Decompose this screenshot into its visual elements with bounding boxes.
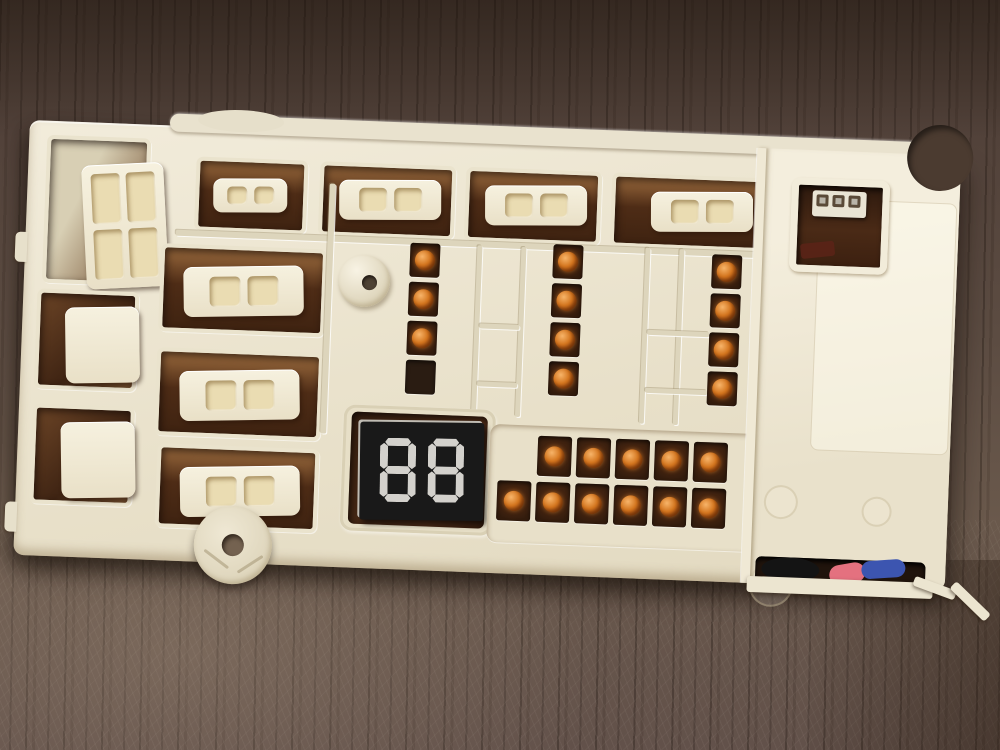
display-seg-a — [385, 438, 411, 446]
connector-four-pin-cube — [65, 306, 140, 383]
led-cell — [537, 436, 573, 477]
pin-hole — [243, 476, 274, 506]
cover-window — [789, 177, 891, 275]
molding-rib — [479, 323, 519, 330]
grid-spacer — [498, 434, 534, 475]
connector-two-pin — [183, 265, 304, 317]
led-cell — [552, 244, 583, 279]
header-pin — [816, 194, 828, 206]
led-orange-dome — [620, 495, 641, 516]
led-orange-dome — [716, 261, 737, 282]
tab-ridge — [237, 555, 264, 574]
led-grid-row — [498, 434, 749, 484]
display-seg-e — [427, 471, 435, 497]
led-cell — [711, 254, 742, 289]
display-seg-c — [407, 471, 415, 497]
wood-dark-top-shading — [0, 0, 1000, 140]
led-grid — [486, 424, 758, 552]
display-seg-g — [385, 466, 411, 474]
led-orange-dome — [413, 289, 434, 310]
display-seg-a — [433, 438, 459, 446]
pin-hole — [670, 200, 698, 224]
pin-hole — [205, 380, 236, 410]
display-window — [348, 412, 488, 529]
led-cell — [707, 371, 738, 406]
led-strip-right — [707, 254, 743, 406]
led-cell — [691, 488, 727, 529]
pin-hole — [540, 194, 568, 218]
led-strip-middle — [548, 244, 584, 396]
display-seg-f — [428, 443, 436, 469]
led-orange-dome — [542, 492, 563, 513]
board-left-nub — [15, 232, 28, 262]
display-seg-b — [456, 444, 464, 470]
led-cell — [708, 332, 739, 367]
screw-boss — [337, 254, 391, 308]
led-orange-dome — [412, 328, 433, 349]
led-orange-dome — [698, 498, 719, 519]
pin-hole — [705, 200, 733, 224]
connector-bay-top — [194, 156, 309, 234]
led-cell — [548, 361, 579, 396]
pcb-component — [800, 241, 835, 259]
led-orange-dome — [622, 449, 643, 470]
display-seg-d — [384, 494, 410, 502]
led-grid-row — [496, 480, 747, 530]
led-cell — [615, 439, 651, 480]
pin-hole — [93, 229, 124, 280]
connector-four-pin-tall — [81, 162, 169, 290]
led-cell — [576, 437, 612, 478]
screw-boss-hole — [362, 275, 378, 291]
led-orange-dome — [583, 448, 604, 469]
led-strip-left — [405, 243, 441, 395]
led-cell — [710, 293, 741, 328]
pin-hole — [125, 171, 156, 222]
empty-led-slot — [405, 360, 436, 395]
led-cell — [409, 243, 440, 278]
led-orange-dome — [700, 452, 721, 473]
photo-scene: { "board": { "display": { "digits": ["8"… — [0, 0, 1000, 750]
control-board — [13, 120, 961, 590]
led-orange-dome — [661, 450, 682, 471]
pin-hole — [505, 193, 533, 217]
pin-hole — [128, 227, 159, 278]
connector-bay-middle — [158, 243, 327, 337]
connector-two-pin — [213, 178, 287, 212]
led-orange-dome — [712, 378, 733, 399]
molding-rib — [639, 248, 651, 424]
connector-bay-top — [318, 161, 457, 240]
led-orange-dome — [503, 490, 524, 511]
board-left-nub — [4, 501, 17, 531]
pin-hole — [394, 188, 422, 212]
led-cell — [574, 483, 610, 524]
pin-hole — [243, 380, 274, 410]
connector-bay-cube — [34, 288, 140, 392]
molding-rib — [673, 249, 685, 425]
pin-hole — [254, 187, 274, 205]
led-cell — [652, 486, 688, 527]
display-seg-f — [380, 443, 388, 469]
connector-two-pin — [339, 180, 441, 220]
blue-wire — [861, 559, 906, 580]
led-orange-dome — [553, 368, 574, 389]
led-cell — [654, 440, 690, 481]
display-digit — [427, 438, 464, 502]
led-cell — [613, 485, 649, 526]
pin-hole — [227, 186, 247, 204]
connector-bay-tall — [42, 135, 152, 287]
led-orange-dome — [715, 300, 736, 321]
led-orange-dome — [556, 290, 577, 311]
led-cell — [551, 283, 582, 318]
display-seg-g — [433, 466, 459, 474]
display-seg-b — [408, 443, 416, 469]
seven-segment-display — [359, 422, 484, 522]
pin-hole — [209, 276, 240, 306]
led-orange-dome — [544, 446, 565, 467]
connector-bay-top — [610, 172, 765, 252]
display-seg-c — [455, 472, 463, 498]
led-orange-dome — [415, 250, 436, 271]
led-cell — [406, 321, 437, 356]
connector-four-pin-cube — [60, 421, 135, 498]
three-pin-header — [812, 190, 867, 218]
led-cell — [549, 322, 580, 357]
header-pin — [832, 195, 844, 207]
pin-hole — [205, 476, 236, 506]
header-pin — [848, 195, 860, 207]
molding-rib — [477, 381, 517, 388]
led-cell — [408, 282, 439, 317]
molding-rib — [515, 247, 527, 417]
display-seg-e — [379, 471, 387, 497]
led-orange-dome — [581, 493, 602, 514]
connector-bay-middle — [154, 347, 323, 441]
led-orange-dome — [659, 496, 680, 517]
led-cell — [693, 442, 729, 483]
display-digit — [379, 438, 416, 502]
mounting-hole — [221, 534, 244, 557]
pin-hole — [90, 173, 121, 224]
led-cell — [496, 480, 532, 521]
pin-hole — [247, 276, 278, 306]
connector-bay-cube — [29, 403, 135, 507]
connector-two-pin — [485, 185, 587, 225]
led-cell — [535, 482, 571, 523]
led-orange-dome — [713, 339, 734, 360]
pin-hole — [359, 188, 387, 212]
connector-bay-top — [464, 167, 603, 246]
connector-two-pin — [651, 192, 753, 232]
display-seg-d — [432, 494, 458, 502]
connector-two-pin — [179, 369, 300, 421]
display-bay — [339, 404, 496, 536]
led-orange-dome — [555, 329, 576, 350]
molding-rib — [471, 245, 483, 415]
led-orange-dome — [558, 251, 579, 272]
